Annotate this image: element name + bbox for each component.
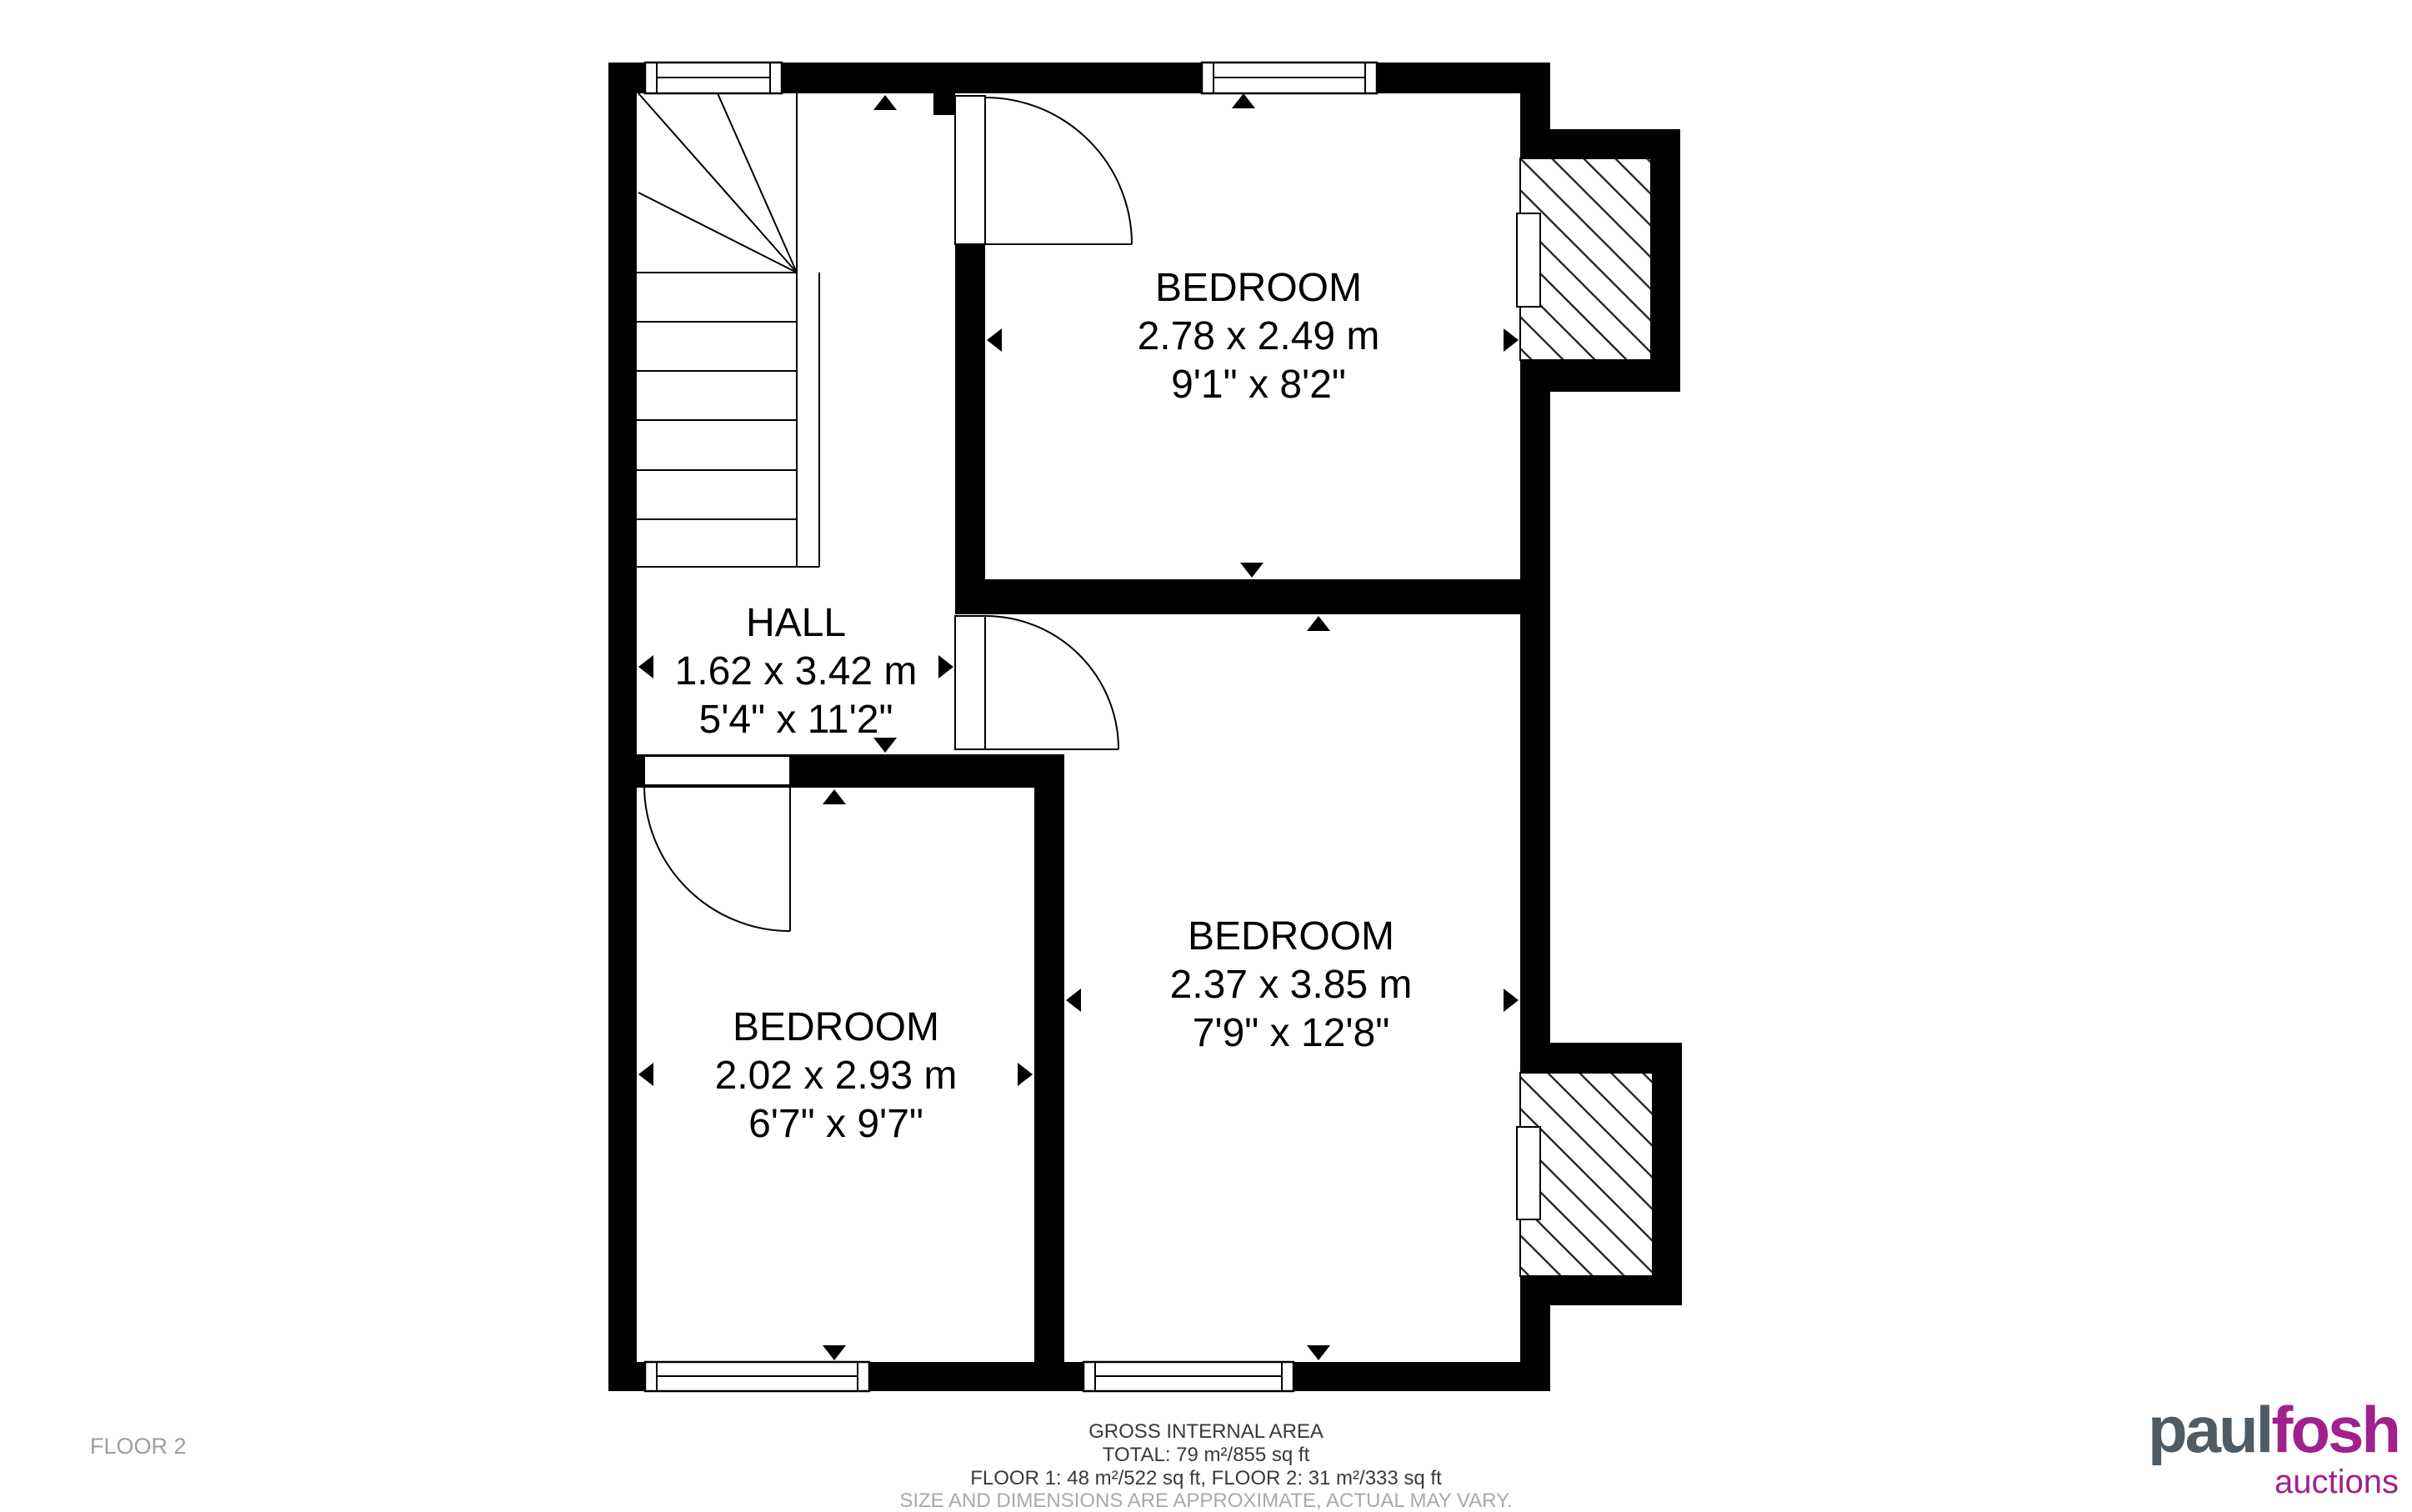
window-middle-bedroom [1083,1362,1294,1391]
room-label-hall: HALL 1.62 x 3.42 m 5'4" x 11'2" [529,599,1063,744]
gross-internal-area-title: GROSS INTERNAL AREA [0,1420,2412,1444]
door-top-bedroom [955,96,1132,244]
staircase [637,93,819,567]
floorplan-drawing [0,0,2412,1507]
middle-bedroom-arrow-up [1307,616,1330,631]
footer-area-summary: GROSS INTERNAL AREA TOTAL: 79 m²/855 sq … [0,1420,2412,1512]
room-name: BEDROOM [992,264,1525,313]
window-top-left [645,63,782,93]
room-label-bedroom-middle: BEDROOM 2.37 x 3.85 m 7'9" x 12'8" [1024,913,1558,1058]
wall-hall-bedroom [955,244,985,614]
room-size-imperial: 9'1" x 8'2" [992,361,1525,409]
floorplan-page: { "floor_label": "FLOOR 2", "rooms": [ {… [0,0,2412,1507]
floor-label: FLOOR 2 [90,1434,187,1459]
total-area: TOTAL: 79 m²/855 sq ft [0,1444,2412,1467]
wall-right-upper [1520,93,1550,129]
room-size-metric: 2.37 x 3.85 m [1024,961,1558,1009]
logo-auctions: auctions [2148,1465,2399,1499]
stair-winder-3 [638,193,797,273]
bottom-bedroom-arrow-up [823,789,846,804]
wall-right-lower [1520,1305,1550,1391]
room-size-imperial: 6'7" x 9'7" [569,1100,1103,1149]
room-size-metric: 1.62 x 3.42 m [529,648,1063,696]
chimney-bottom-bay [1517,1073,1653,1276]
door-bottom-left-bedroom [644,756,790,931]
room-name: BEDROOM [569,1004,1103,1052]
room-size-imperial: 5'4" x 11'2" [529,696,1063,744]
paulfosh-auctions-logo: paulfosh auctions [2148,1397,2399,1499]
floor-areas: FLOOR 1: 48 m²/522 sq ft, FLOOR 2: 31 m²… [0,1467,2412,1490]
room-size-metric: 2.78 x 2.49 m [992,313,1525,361]
room-name: BEDROOM [1024,913,1558,961]
hall-arrow-up [873,95,897,110]
room-label-bedroom-top: BEDROOM 2.78 x 2.49 m 9'1" x 8'2" [992,264,1525,409]
top-bedroom-arrow-down [1240,563,1264,578]
room-name: HALL [529,599,1063,648]
stair-winder-2 [718,93,797,273]
room-size-imperial: 7'9" x 12'8" [1024,1009,1558,1058]
room-size-metric: 2.02 x 2.93 m [569,1052,1103,1100]
top-bedroom-arrow-up [1232,93,1255,108]
window-top-bedroom [1202,63,1377,93]
wall-door-pier [933,93,955,115]
window-bottom-left-bedroom [645,1362,869,1391]
room-label-bedroom-bottom-left: BEDROOM 2.02 x 2.93 m 6'7" x 9'7" [569,1004,1103,1149]
logo-paul: paul [2148,1393,2271,1466]
chimney-bottom-window-recess [1517,1127,1540,1219]
bottom-bedroom-arrow-down [823,1345,846,1360]
disclaimer: SIZE AND DIMENSIONS ARE APPROXIMATE, ACT… [0,1490,2412,1512]
chimney-top-bay [1517,158,1651,360]
stair-winder-1 [638,93,797,273]
logo-fosh: fosh [2271,1393,2399,1466]
middle-bedroom-arrow-down [1307,1345,1330,1360]
